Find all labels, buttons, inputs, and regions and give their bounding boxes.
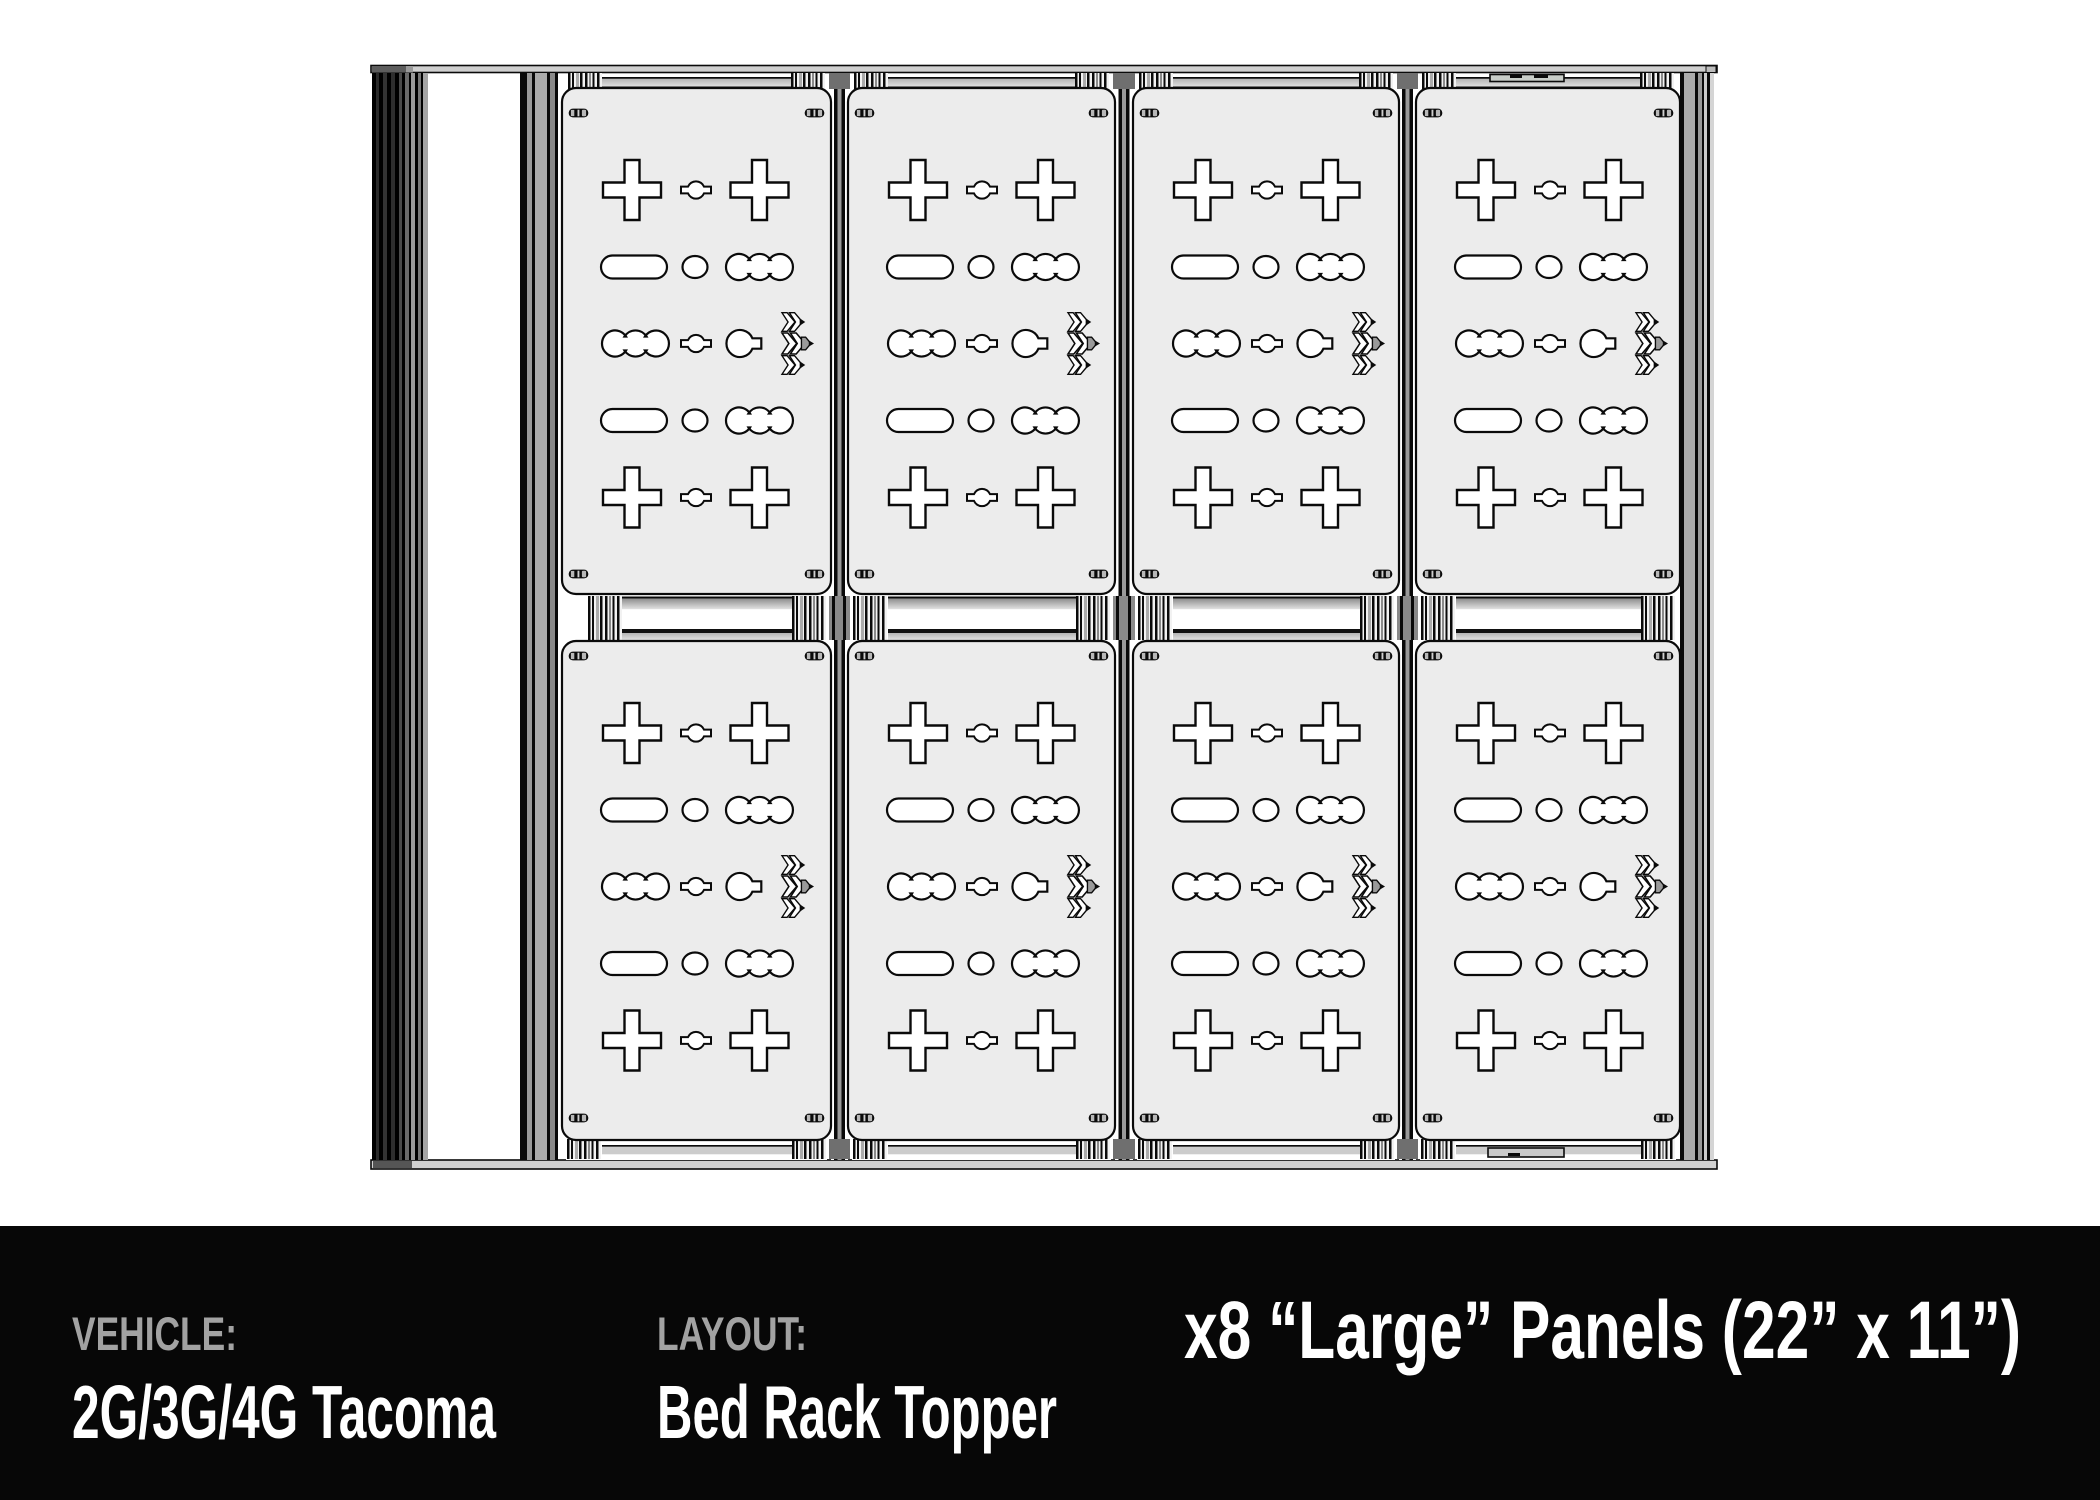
svg-text:LAYOUT:: LAYOUT:: [657, 1307, 807, 1360]
svg-text:x8 “Large” Panels (22” x 11”): x8 “Large” Panels (22” x 11”): [1184, 1285, 2021, 1376]
svg-text:VEHICLE:: VEHICLE:: [72, 1307, 237, 1360]
svg-text:Bed Rack Topper: Bed Rack Topper: [657, 1370, 1057, 1454]
svg-text:2G/3G/4G Tacoma: 2G/3G/4G Tacoma: [72, 1370, 497, 1454]
